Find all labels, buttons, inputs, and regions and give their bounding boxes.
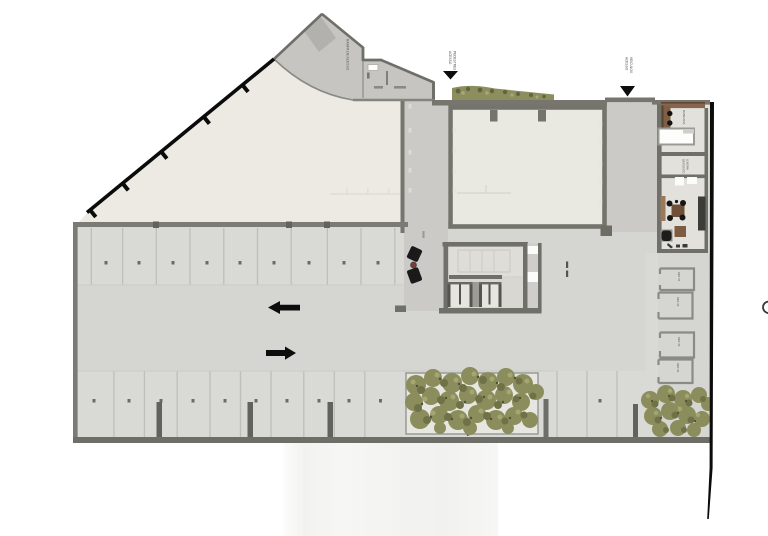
- svg-text:PEDESTRES: PEDESTRES: [453, 51, 457, 70]
- svg-text:DEPOSITO: DEPOSITO: [682, 159, 686, 174]
- svg-text:DEP. 01: DEP. 01: [677, 272, 681, 282]
- svg-text:VEICULOS: VEICULOS: [629, 57, 633, 73]
- svg-text:RAMPA DE ACESSO: RAMPA DE ACESSO: [346, 39, 350, 71]
- svg-text:BANCADA: BANCADA: [682, 110, 686, 125]
- svg-text:ACESSO: ACESSO: [448, 51, 452, 65]
- svg-text:LIXEIRA: LIXEIRA: [686, 159, 690, 170]
- svg-text:DEP. 04: DEP. 04: [676, 363, 680, 373]
- svg-text:ACESSO: ACESSO: [625, 57, 629, 71]
- svg-text:DEP. 03: DEP. 03: [677, 337, 681, 347]
- svg-text:DEP. 02: DEP. 02: [676, 297, 680, 307]
